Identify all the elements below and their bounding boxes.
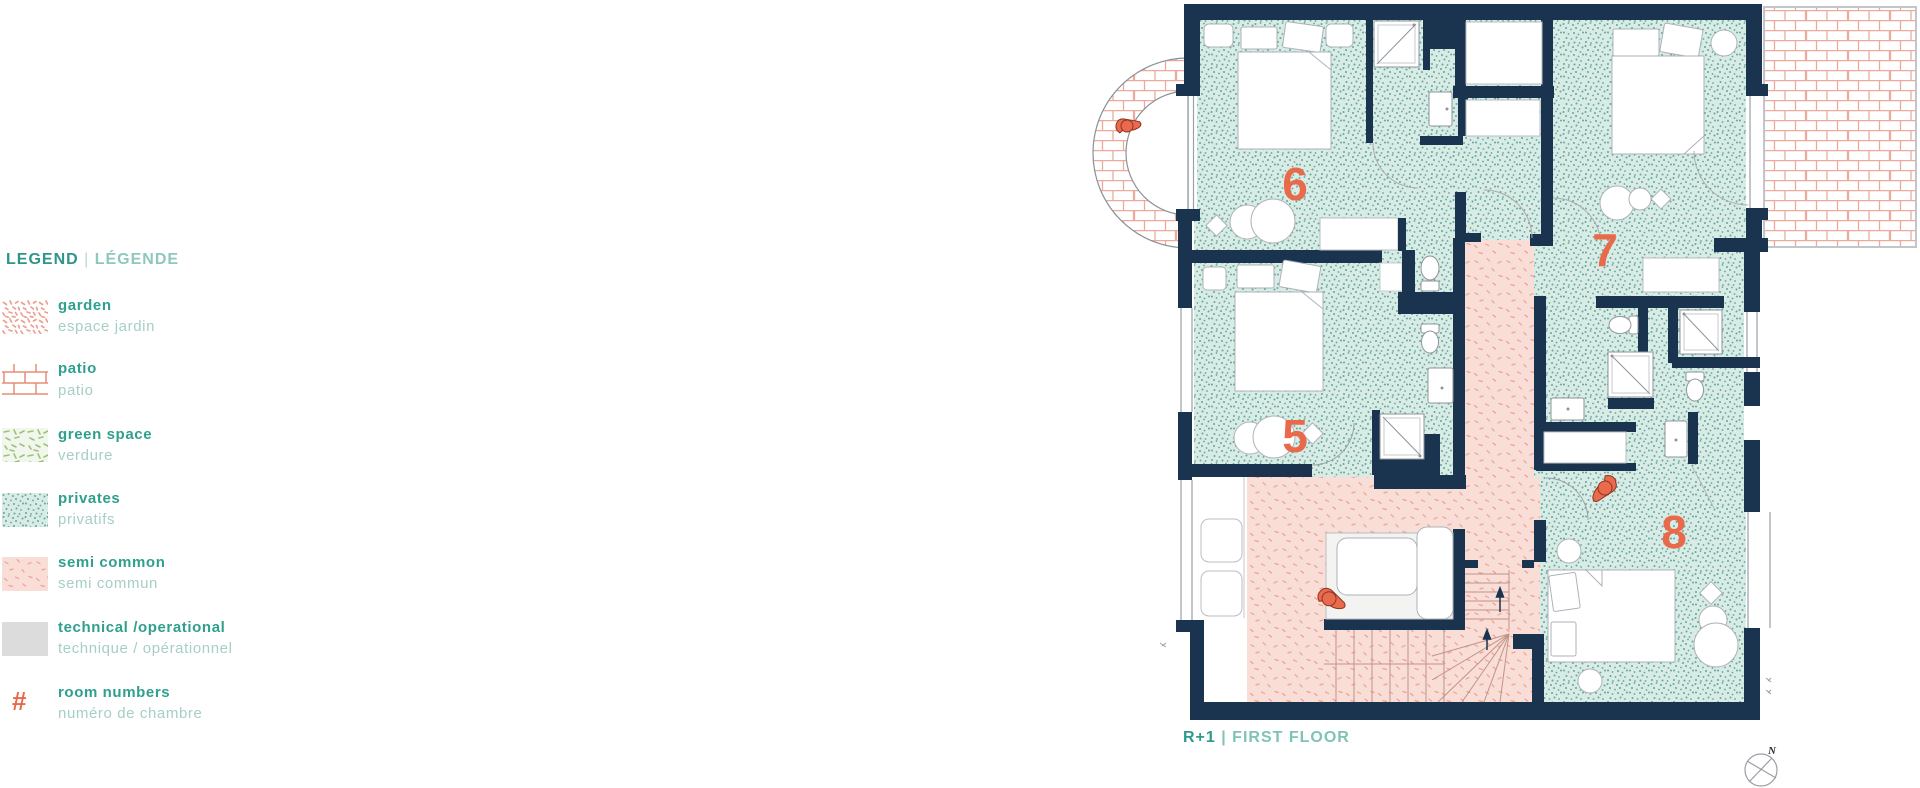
svg-text:7: 7 [1592,224,1618,276]
svg-text:8: 8 [1661,506,1687,558]
svg-text:6: 6 [1282,158,1308,210]
svg-text:N: N [1767,745,1777,757]
svg-text:5: 5 [1282,410,1308,462]
